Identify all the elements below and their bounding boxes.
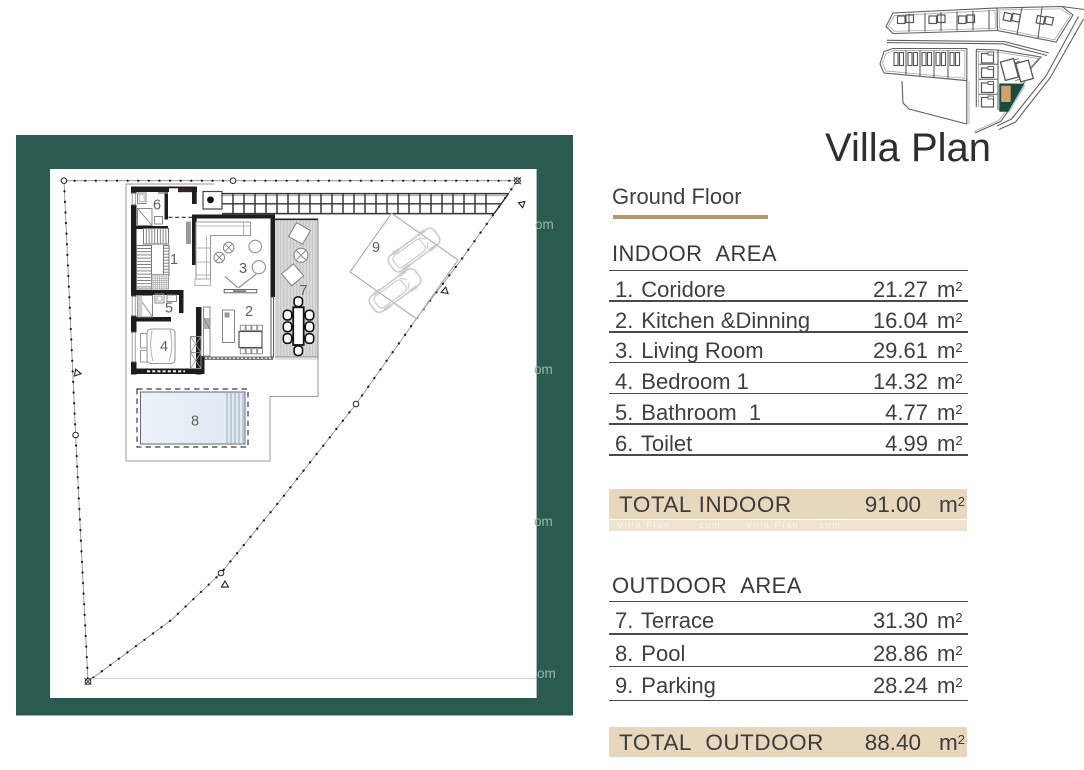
svg-text:1: 1 [170, 252, 178, 268]
svg-text:8: 8 [191, 414, 199, 430]
svg-text:om: om [535, 217, 554, 232]
svg-text:2: 2 [245, 304, 253, 320]
svg-text:5: 5 [165, 301, 173, 317]
svg-text:om: om [534, 514, 553, 529]
svg-text:7: 7 [299, 283, 307, 299]
svg-text:9: 9 [372, 240, 380, 256]
svg-text:4: 4 [160, 339, 168, 355]
svg-text:om: om [534, 362, 553, 377]
svg-text:3: 3 [239, 261, 247, 277]
svg-text:6: 6 [153, 198, 161, 214]
svg-text:om: om [537, 666, 556, 681]
